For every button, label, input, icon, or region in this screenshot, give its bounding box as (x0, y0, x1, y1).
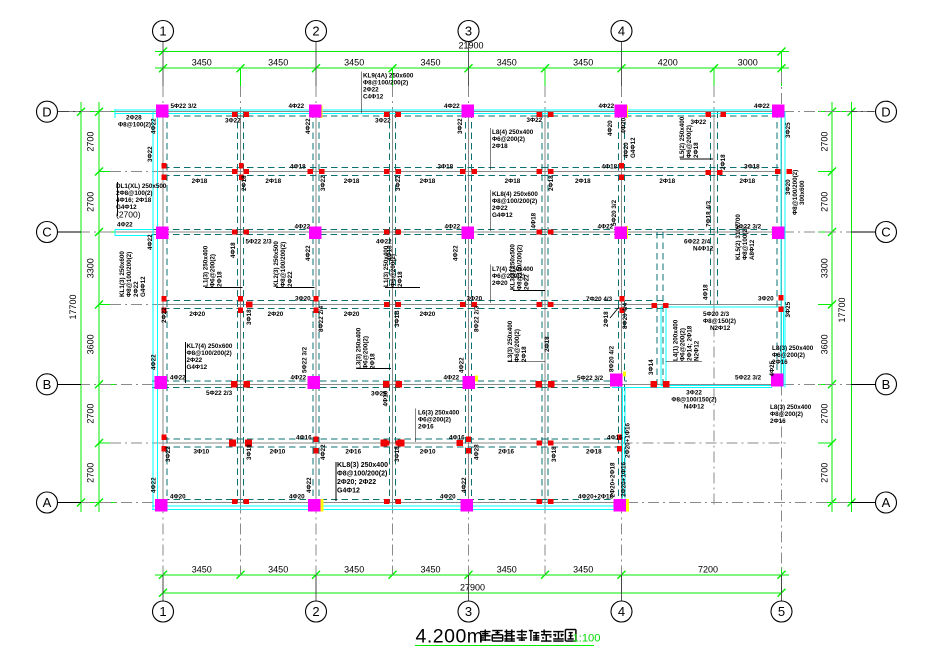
svg-text:4Φ22: 4Φ22 (117, 222, 133, 229)
svg-text:4Φ16: 4Φ16 (607, 435, 623, 442)
svg-text:4Φ20: 4Φ20 (289, 494, 305, 501)
svg-text:G4Φ12: G4Φ12 (187, 364, 208, 371)
svg-text:4.200m: 4.200m (416, 626, 484, 648)
svg-text:2Φ22: 2Φ22 (187, 357, 203, 364)
svg-text:3450: 3450 (192, 564, 212, 574)
svg-text:4Φ18: 4Φ18 (230, 242, 237, 258)
svg-text:3450: 3450 (268, 58, 288, 68)
svg-text:B: B (882, 377, 891, 392)
svg-text:3Φ20: 3Φ20 (758, 296, 774, 303)
svg-text:L5(2) 250x400: L5(2) 250x400 (679, 116, 686, 158)
svg-text:3Φ18: 3Φ18 (394, 446, 401, 462)
svg-text:5Φ22 3/2: 5Φ22 3/2 (577, 375, 604, 382)
svg-text:Φ6@200(2): Φ6@200(2) (686, 125, 693, 158)
svg-text:2Φ18: 2Φ18 (344, 178, 360, 185)
svg-text:2Φ20: 2Φ20 (344, 311, 360, 318)
svg-text:4Φ22: 4Φ22 (305, 118, 312, 134)
svg-text:Φ6@200(2): Φ6@200(2) (210, 254, 217, 287)
svg-text:27900: 27900 (460, 582, 485, 592)
svg-text:4Φ22: 4Φ22 (170, 375, 186, 382)
svg-text:5Φ22 3/2: 5Φ22 3/2 (171, 103, 198, 110)
svg-text:8Φ20 4/4: 8Φ20 4/4 (622, 302, 629, 329)
svg-text:Φ6@200(2): Φ6@200(2) (390, 254, 397, 287)
svg-text:2Φ20+2Φ18: 2Φ20+2Φ18 (610, 462, 617, 498)
svg-text:B: B (43, 377, 52, 392)
svg-text:3Φ22: 3Φ22 (165, 446, 172, 462)
svg-text:8Φ22 2/4: 8Φ22 2/4 (318, 305, 325, 332)
svg-text:4Φ18: 4Φ18 (703, 284, 710, 300)
svg-text:C: C (881, 225, 890, 240)
svg-text:2Φ16: 2Φ16 (770, 418, 786, 425)
svg-text:Φ8@100(2): Φ8@100(2) (118, 122, 151, 129)
svg-text:4Φ20: 4Φ20 (621, 117, 628, 133)
svg-text:3Φ22: 3Φ22 (147, 146, 154, 162)
svg-text:2Φ18: 2Φ18 (492, 143, 508, 150)
svg-text:3Φ22: 3Φ22 (375, 118, 391, 125)
svg-text:1: 1 (159, 604, 166, 619)
svg-text:4: 4 (618, 24, 625, 39)
svg-text:2Φ22: 2Φ22 (492, 205, 508, 212)
svg-text:5Φ22 3/2: 5Φ22 3/2 (302, 346, 309, 373)
svg-text:Φ6@200(2): Φ6@200(2) (772, 352, 805, 359)
svg-text:2700: 2700 (86, 192, 96, 212)
svg-text:1: 1 (159, 24, 166, 39)
svg-text:3450: 3450 (497, 58, 517, 68)
svg-text:7Φ18 4/3: 7Φ18 4/3 (706, 200, 713, 227)
svg-text:3Φ22: 3Φ22 (225, 118, 241, 125)
svg-text:2Φ28: 2Φ28 (126, 115, 142, 122)
svg-text:Φ8@100/200(2): Φ8@100/200(2) (363, 80, 408, 87)
svg-text:3450: 3450 (344, 58, 364, 68)
svg-text:4Φ18: 4Φ18 (602, 164, 618, 171)
svg-text:4Φ20: 4Φ20 (623, 142, 630, 158)
svg-text:N2Φ12: N2Φ12 (694, 340, 701, 361)
svg-text:5Φ20 3/2: 5Φ20 3/2 (611, 199, 618, 226)
svg-text:2Φ8@100(2): 2Φ8@100(2) (116, 190, 153, 197)
svg-text:Φ8@100/150(2): Φ8@100/150(2) (671, 397, 716, 404)
svg-text:DL1(XL) 250x500: DL1(XL) 250x500 (116, 183, 167, 190)
svg-text:3: 3 (465, 604, 472, 619)
svg-text:3450: 3450 (497, 564, 517, 574)
svg-text:4Φ20: 4Φ20 (607, 120, 614, 136)
svg-text:2Φ18: 2Φ18 (659, 178, 675, 185)
svg-text:2700: 2700 (820, 192, 830, 212)
svg-text:4Φ20+2Φ18: 4Φ20+2Φ18 (578, 494, 614, 501)
svg-text:Φ8@100/200(2): Φ8@100/200(2) (280, 242, 287, 287)
svg-text:5: 5 (778, 604, 785, 619)
svg-text:3450: 3450 (573, 564, 593, 574)
svg-text:A: A (43, 495, 52, 510)
svg-text:2Φ20: 2Φ20 (268, 311, 284, 318)
svg-text:4: 4 (618, 604, 625, 619)
svg-text:3Φ20: 3Φ20 (467, 296, 483, 303)
svg-text:17700: 17700 (837, 297, 847, 322)
svg-text:Φ6@200(2): Φ6@200(2) (514, 329, 521, 362)
svg-text:2Φ20+1Φ16: 2Φ20+1Φ16 (625, 422, 632, 458)
svg-text:4Φ22: 4Φ22 (599, 103, 615, 110)
svg-text:2Φ22: 2Φ22 (161, 307, 168, 323)
svg-text:4Φ22: 4Φ22 (459, 357, 466, 373)
svg-text:D: D (881, 104, 890, 119)
svg-text:3450: 3450 (344, 564, 364, 574)
svg-text:4Φ22: 4Φ22 (461, 477, 468, 493)
svg-text:4Φ16: 4Φ16 (449, 435, 465, 442)
svg-text:2: 2 (312, 24, 319, 39)
svg-text:4Φ22: 4Φ22 (306, 477, 313, 493)
svg-text:5Φ22 2/3: 5Φ22 2/3 (246, 239, 273, 246)
svg-text:3450: 3450 (573, 58, 593, 68)
svg-text:Φ8@200(2): Φ8@200(2) (770, 411, 803, 418)
svg-text:4Φ18: 4Φ18 (531, 212, 538, 228)
svg-text:3Φ18: 3Φ18 (246, 444, 253, 460)
svg-text:L1(3) 250x400: L1(3) 250x400 (383, 245, 390, 287)
svg-text:L4(1) 200x400: L4(1) 200x400 (673, 319, 680, 361)
svg-text:4Φ16: 4Φ16 (383, 390, 390, 406)
svg-text:Φ8@100(2): Φ8@100(2) (742, 227, 749, 260)
svg-text:Φ6@200(2): Φ6@200(2) (680, 328, 687, 361)
svg-text:7200: 7200 (698, 564, 718, 574)
svg-text:2Φ20: 2Φ20 (420, 311, 436, 318)
svg-text:4Φ22: 4Φ22 (320, 444, 327, 460)
svg-text:Φ8@100/200(2): Φ8@100/200(2) (492, 198, 537, 205)
svg-text:6Φ22 2/4: 6Φ22 2/4 (684, 239, 711, 246)
svg-text:2Φ20+1Φ16: 2Φ20+1Φ16 (621, 461, 628, 497)
svg-text:2Φ18: 2Φ18 (505, 178, 521, 185)
svg-text:4Φ28: 4Φ28 (474, 444, 481, 460)
svg-text:2700: 2700 (86, 404, 96, 424)
svg-text:3Φ22: 3Φ22 (527, 117, 543, 124)
svg-text:2Φ16: 2Φ16 (418, 424, 434, 431)
svg-text:4Φ22: 4Φ22 (151, 477, 158, 493)
svg-text:3450: 3450 (192, 58, 212, 68)
svg-text:3Φ18: 3Φ18 (438, 164, 454, 171)
svg-text:4Φ22: 4Φ22 (147, 234, 154, 250)
svg-text:3Φ18: 3Φ18 (744, 164, 760, 171)
svg-text:Φ8@100/200(2): Φ8@100/200(2) (187, 350, 232, 357)
svg-text:4Φ22: 4Φ22 (291, 375, 307, 382)
svg-text:L8(3) 250x400: L8(3) 250x400 (772, 345, 814, 352)
svg-text:2Φ16: 2Φ16 (345, 449, 361, 456)
svg-text:2Φ18: 2Φ18 (740, 178, 756, 185)
svg-text:(2700): (2700) (116, 210, 141, 220)
svg-text:3Φ22: 3Φ22 (686, 390, 702, 397)
svg-text:Φ6@200(2): Φ6@200(2) (418, 417, 451, 424)
svg-text:1:100: 1:100 (573, 633, 601, 645)
svg-text:2Φ18: 2Φ18 (544, 336, 551, 352)
svg-text:N2Φ12: N2Φ12 (710, 325, 731, 332)
svg-text:2Φ18: 2Φ18 (586, 449, 602, 456)
svg-text:4Φ18: 4Φ18 (290, 164, 306, 171)
svg-text:2Φ18: 2Φ18 (370, 353, 377, 369)
svg-text:7Φ20 4/3: 7Φ20 4/3 (586, 296, 613, 303)
svg-text:300x600: 300x600 (799, 180, 806, 205)
svg-text:4Φ22: 4Φ22 (444, 375, 460, 382)
svg-text:3450: 3450 (420, 564, 440, 574)
svg-text:2700: 2700 (86, 132, 96, 152)
svg-text:4Φ20: 4Φ20 (440, 494, 456, 501)
svg-text:2Φ10: 2Φ10 (270, 449, 286, 456)
svg-text:8Φ20 4/2: 8Φ20 4/2 (609, 345, 616, 372)
svg-text:KL5(2) 310x700: KL5(2) 310x700 (735, 214, 742, 260)
svg-text:5Φ22 2/3: 5Φ22 2/3 (206, 390, 233, 397)
svg-text:2Φ16: 2Φ16 (498, 449, 514, 456)
svg-text:4Φ22: 4Φ22 (376, 239, 392, 246)
svg-text:L8(3) 250x400: L8(3) 250x400 (770, 404, 812, 411)
svg-text:N4Φ12: N4Φ12 (693, 246, 714, 253)
svg-text:3450: 3450 (420, 58, 440, 68)
svg-text:2Φ18: 2Φ18 (241, 175, 248, 191)
svg-text:G4Φ12: G4Φ12 (492, 212, 513, 219)
svg-text:G4Φ12: G4Φ12 (140, 276, 147, 297)
svg-text:4Φ22: 4Φ22 (295, 224, 311, 231)
svg-text:2Φ18: 2Φ18 (420, 178, 436, 185)
svg-text:D: D (42, 104, 51, 119)
svg-text:3Φ18: 3Φ18 (246, 309, 253, 325)
svg-text:2Φ20; 2Φ22: 2Φ20; 2Φ22 (337, 479, 376, 486)
svg-text:2Φ18: 2Φ18 (548, 175, 555, 191)
svg-text:3Φ20: 3Φ20 (295, 296, 311, 303)
svg-text:KL8(4) 250x600: KL8(4) 250x600 (492, 191, 538, 198)
svg-text:2Φ20: 2Φ20 (492, 280, 508, 287)
svg-text:Φ8@100/200(2): Φ8@100/200(2) (337, 471, 387, 478)
svg-text:4Φ16; 2Φ18: 4Φ16; 2Φ18 (116, 197, 152, 204)
svg-text:G4Φ12: G4Φ12 (630, 137, 637, 158)
svg-text:2Φ18: 2Φ18 (192, 178, 208, 185)
svg-text:3Φ20: 3Φ20 (785, 179, 792, 195)
svg-text:A8Φ12: A8Φ12 (749, 239, 756, 260)
svg-text:N4Φ12: N4Φ12 (684, 404, 705, 411)
svg-text:3450: 3450 (268, 564, 288, 574)
svg-text:2Φ22: 2Φ22 (287, 271, 294, 287)
svg-text:3300: 3300 (86, 258, 96, 278)
svg-text:5Φ20 2/3: 5Φ20 2/3 (703, 311, 730, 318)
svg-text:Φ6@200(2): Φ6@200(2) (363, 336, 370, 369)
svg-text:3: 3 (465, 24, 472, 39)
svg-text:2Φ18: 2Φ18 (217, 271, 224, 287)
svg-text:3600: 3600 (86, 334, 96, 354)
svg-text:KL7(4) 250x600: KL7(4) 250x600 (187, 343, 233, 350)
svg-text:2Φ18: 2Φ18 (397, 271, 404, 287)
svg-text:3000: 3000 (738, 58, 758, 68)
svg-text:8Φ22 2/3: 8Φ22 2/3 (474, 305, 481, 332)
svg-text:2Φ18: 2Φ18 (521, 346, 528, 362)
svg-text:2700: 2700 (820, 132, 830, 152)
svg-text:C: C (42, 225, 51, 240)
svg-text:3Φ18: 3Φ18 (551, 446, 558, 462)
svg-text:L7(4) 250x400: L7(4) 250x400 (492, 266, 534, 273)
svg-text:3Φ22: 3Φ22 (691, 119, 707, 126)
svg-text:L8(4) 250x400: L8(4) 250x400 (492, 129, 534, 136)
svg-text:3Φ22: 3Φ22 (395, 175, 402, 191)
svg-text:L1(3) 250x400: L1(3) 250x400 (203, 245, 210, 287)
svg-text:Φ8@150(2): Φ8@150(2) (703, 318, 736, 325)
svg-text:4Φ22: 4Φ22 (289, 103, 305, 110)
svg-text:4Φ22: 4Φ22 (445, 224, 461, 231)
svg-text:3Φ1B: 3Φ1B (394, 310, 401, 327)
svg-text:2Φ18: 2Φ18 (575, 178, 591, 185)
svg-text:2700: 2700 (86, 463, 96, 483)
svg-text:3Φ22: 3Φ22 (457, 118, 464, 134)
svg-text:4Φ20: 4Φ20 (170, 494, 186, 501)
svg-text:L3(3) 250x400: L3(3) 250x400 (356, 327, 363, 369)
svg-text:3Φ22: 3Φ22 (320, 175, 327, 191)
svg-text:2Φ10: 2Φ10 (420, 449, 436, 456)
svg-text:2Φ20: 2Φ20 (189, 311, 205, 318)
svg-text:Φ8@100/200(2): Φ8@100/200(2) (792, 170, 799, 215)
svg-text:L3(3) 250x400: L3(3) 250x400 (507, 320, 514, 362)
svg-text:KL9(4A) 250x600: KL9(4A) 250x600 (363, 73, 414, 80)
svg-text:G4Φ12: G4Φ12 (337, 488, 360, 495)
svg-text:4Φ22: 4Φ22 (151, 354, 158, 370)
svg-text:2Φ16: 2Φ16 (772, 359, 788, 366)
svg-text:3Φ25: 3Φ25 (785, 301, 792, 317)
svg-text:KL1(3) 250x600: KL1(3) 250x600 (119, 251, 126, 297)
svg-text:21900: 21900 (458, 41, 483, 51)
svg-text:5Φ22 3/2: 5Φ22 3/2 (735, 375, 762, 382)
svg-text:4200: 4200 (658, 58, 678, 68)
svg-text:4Φ22: 4Φ22 (151, 118, 158, 134)
svg-text:3600: 3600 (820, 334, 830, 354)
svg-text:A: A (882, 495, 891, 510)
svg-text:3Φ25: 3Φ25 (785, 122, 792, 138)
svg-text:2Φ18: 2Φ18 (720, 154, 727, 170)
svg-text:2Φ18: 2Φ18 (693, 142, 700, 158)
svg-text:2700: 2700 (820, 404, 830, 424)
svg-text:2Φ22: 2Φ22 (133, 281, 140, 297)
svg-text:Φ8@100/200(2): Φ8@100/200(2) (126, 252, 133, 297)
svg-text:4Φ22: 4Φ22 (305, 245, 312, 261)
svg-text:4Φ22: 4Φ22 (754, 103, 770, 110)
svg-text:17700: 17700 (68, 294, 78, 319)
svg-text:C4Φ12: C4Φ12 (363, 94, 384, 101)
svg-text:3300: 3300 (820, 258, 830, 278)
svg-text:Φ6@200(2): Φ6@200(2) (492, 273, 525, 280)
svg-text:2Φ18: 2Φ18 (265, 178, 281, 185)
svg-text:2Φ18: 2Φ18 (603, 311, 610, 327)
svg-text:4Φ16: 4Φ16 (296, 435, 312, 442)
svg-text:Φ6@200(2): Φ6@200(2) (492, 136, 525, 143)
svg-text:KL8(3) 250x400: KL8(3) 250x400 (337, 462, 388, 469)
svg-text:2: 2 (312, 604, 319, 619)
svg-text:L6(3) 250x400: L6(3) 250x400 (418, 410, 460, 417)
svg-text:3Φ10: 3Φ10 (194, 449, 210, 456)
svg-text:3Φ14: 3Φ14 (648, 359, 655, 375)
svg-text:2Φ22: 2Φ22 (363, 87, 379, 94)
svg-text:4Φ22: 4Φ22 (453, 245, 460, 261)
svg-text:2700: 2700 (820, 463, 830, 483)
svg-text:KL2(3) 250x500: KL2(3) 250x500 (273, 241, 280, 287)
svg-text:4Φ22: 4Φ22 (444, 103, 460, 110)
svg-text:2Φ14; 2Φ18: 2Φ14; 2Φ18 (687, 325, 694, 361)
